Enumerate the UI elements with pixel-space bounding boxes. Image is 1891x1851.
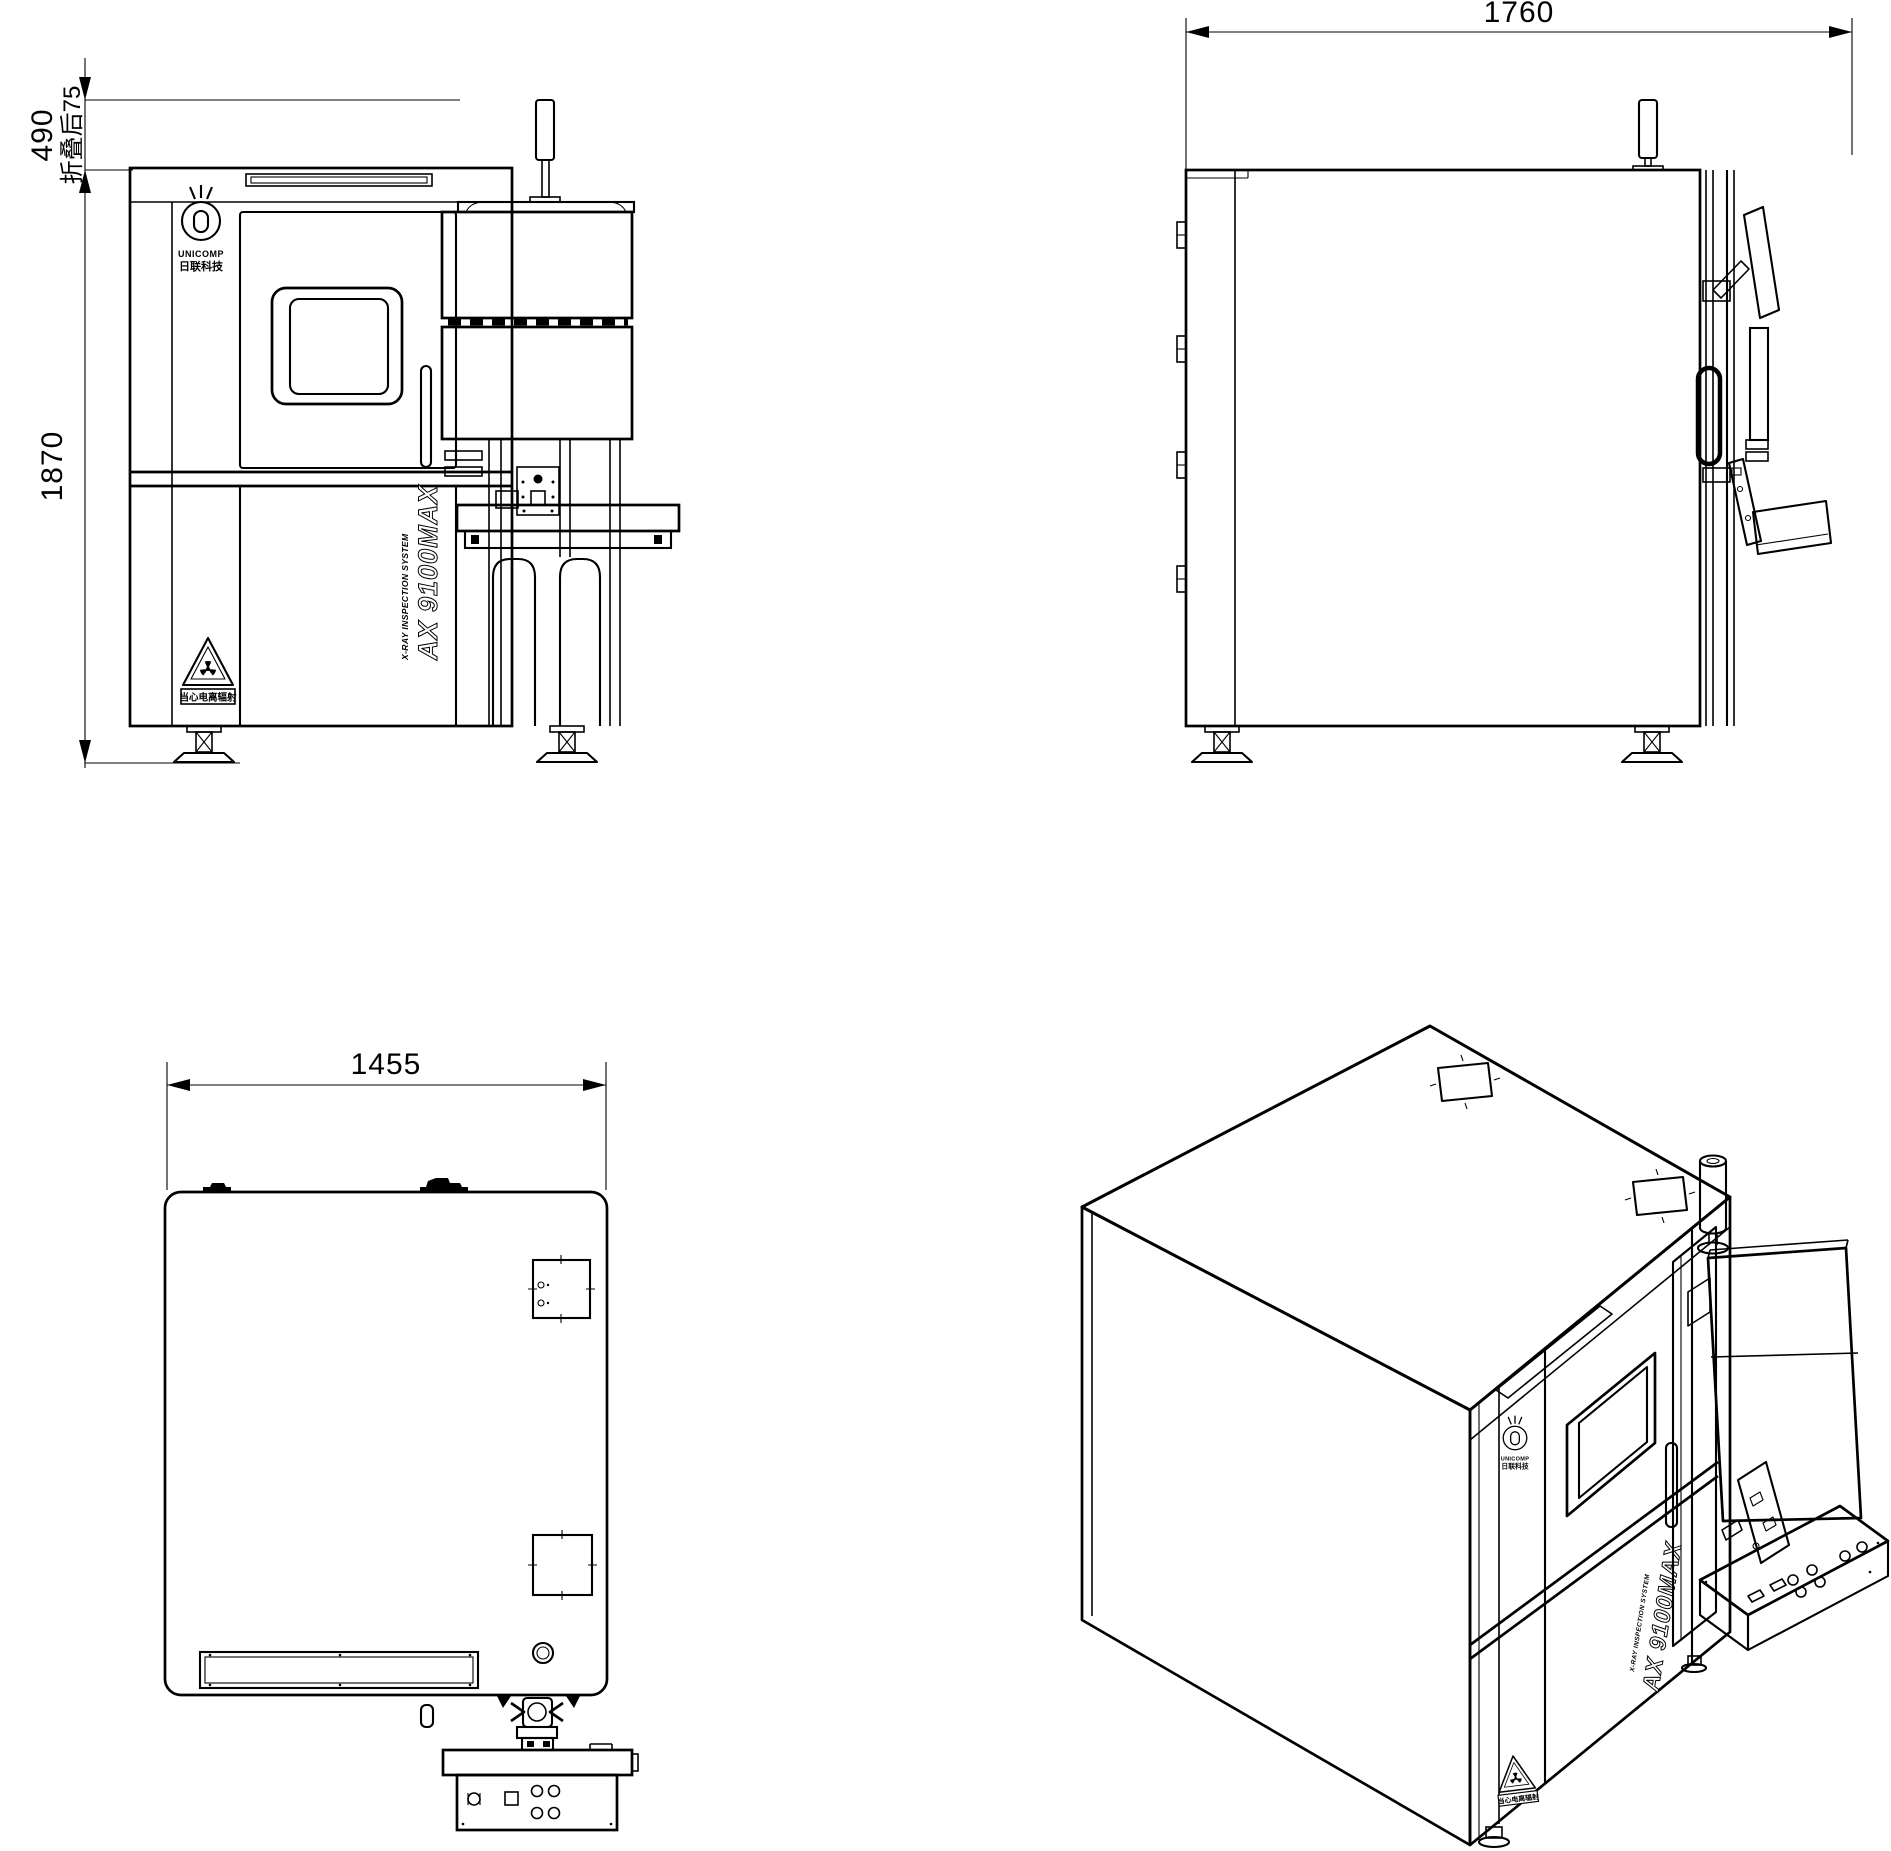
monitor-swivel-mount <box>511 1698 563 1750</box>
iso-window <box>1567 1353 1655 1516</box>
dim-arrow <box>1829 26 1852 38</box>
top-dimensions: 1455 <box>167 1048 606 1190</box>
tagline-text: X-RAY INSPECTION SYSTEM <box>400 533 410 661</box>
dim-arrow <box>1186 26 1209 38</box>
model-text: AX 9100MAX <box>413 484 443 661</box>
dim-arrow <box>583 1079 606 1091</box>
control-box <box>442 327 632 439</box>
lamp-mount-top <box>533 1643 553 1663</box>
monitor-arm <box>1713 261 1749 298</box>
iso-top-face <box>1082 1026 1730 1410</box>
top-view: 1455 <box>165 1048 638 1830</box>
roof-cutout-2 <box>528 1530 597 1600</box>
technical-drawing: UNICOMP 日联科技 当心电离辐射 <box>0 0 1891 1851</box>
viewing-window <box>272 288 402 404</box>
keyboard-tray-folded <box>1729 459 1831 554</box>
side-cabinet <box>1177 100 1831 726</box>
iso-keyboard-arm <box>1722 1462 1789 1563</box>
top-cabinet <box>165 1178 638 1830</box>
iso-door-slot <box>1496 1306 1612 1398</box>
dim-1760: 1760 <box>1484 0 1555 29</box>
vent-panel <box>200 1652 478 1688</box>
door-handle <box>421 366 431 467</box>
iso-keyboard-tray <box>1700 1506 1888 1650</box>
iso-feet <box>1479 1656 1706 1847</box>
dim-1870: 1870 <box>36 431 69 502</box>
front-dimensions: 490 折叠后75 1870 <box>26 58 460 768</box>
isometric-view: AX 9100MAX X-RAY INSPECTION SYSTEM <box>1082 1026 1888 1847</box>
signal-lamp <box>1633 100 1663 170</box>
iso-left-face <box>1082 1207 1470 1845</box>
dim-490-note: 折叠后75 <box>59 86 86 185</box>
handle-top <box>420 1178 468 1192</box>
door-handle-top <box>421 1705 433 1727</box>
roof-cutout-1 <box>528 1255 595 1323</box>
hinge-top <box>203 1183 231 1192</box>
monitor-side <box>1744 207 1779 318</box>
signal-lamp <box>530 100 560 202</box>
front-cabinet: AX 9100MAX X-RAY INSPECTION SYSTEM <box>130 168 512 726</box>
dim-490: 490 <box>26 108 59 161</box>
monitor-back <box>442 212 632 318</box>
front-view: 490 折叠后75 1870 AX 9100MAX X-RAY INSPECTI… <box>26 58 679 768</box>
dim-arrow <box>79 740 91 763</box>
side-view: 1760 <box>1177 0 1852 762</box>
control-plate <box>517 467 559 515</box>
iso-roof-cutouts <box>1430 1055 1695 1223</box>
keyboard-shelf <box>457 505 679 531</box>
keyboard-tray-top <box>443 1744 638 1830</box>
dim-arrow <box>167 1079 190 1091</box>
dim-1455: 1455 <box>351 1048 422 1081</box>
front-operator-column <box>442 100 679 726</box>
drawing-sheet: UNICOMP 日联科技 当心电离辐射 <box>0 0 1891 1851</box>
